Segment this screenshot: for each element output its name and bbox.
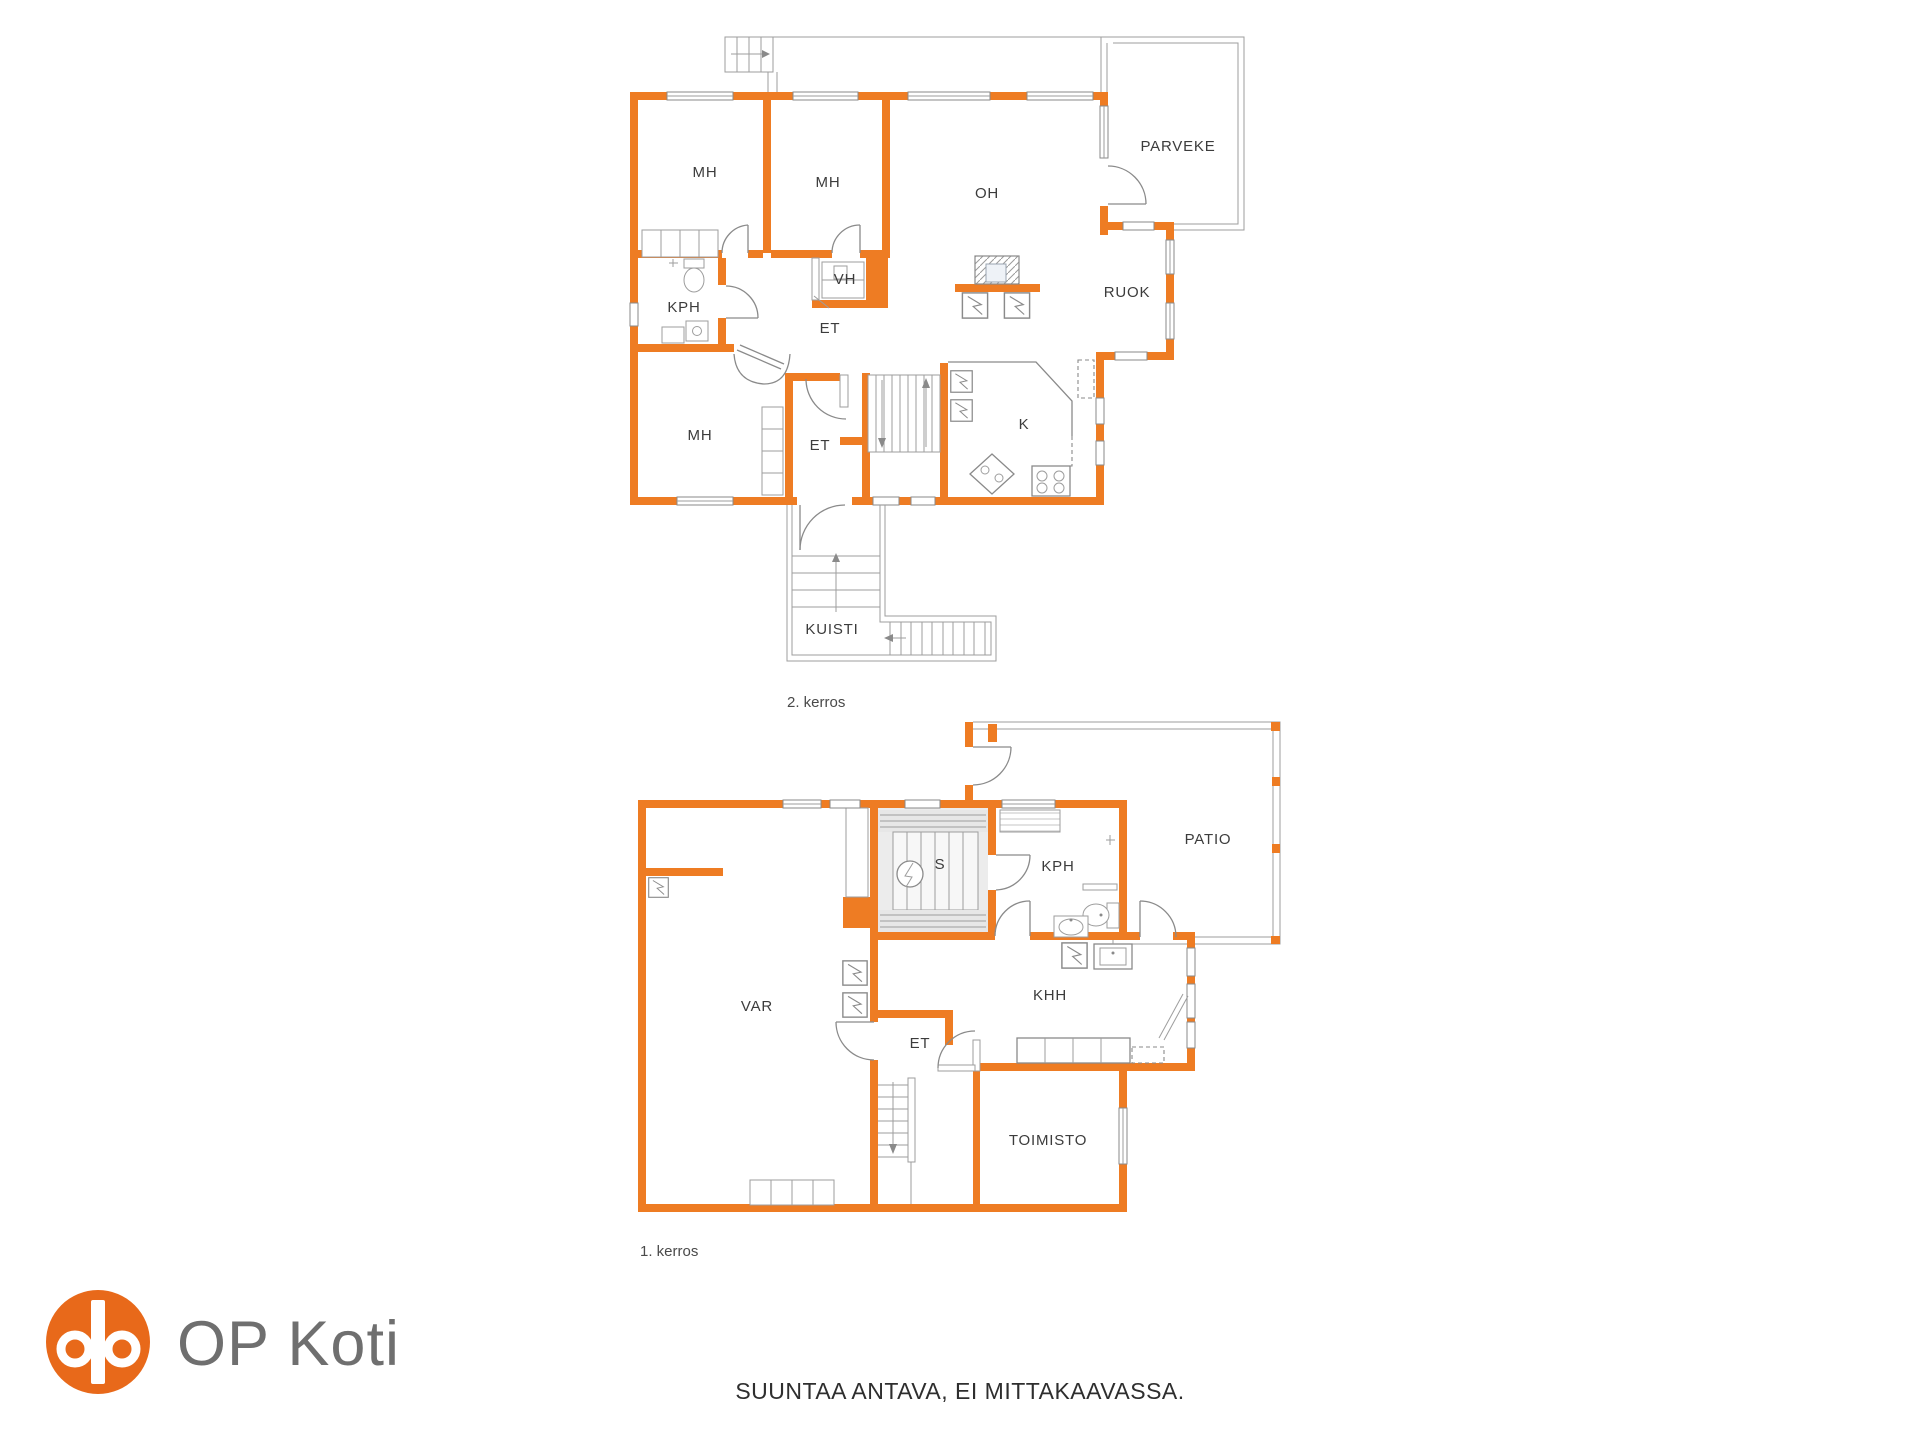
room-label-k: K	[1019, 416, 1030, 433]
floorplan-drawing: MH MH OH PARVEKE VH RUOK KPH ET MH ET K …	[0, 0, 1920, 1440]
op-koti-logo: OP Koti	[46, 1290, 400, 1394]
disclaimer-caption: SUUNTAA ANTAVA, EI MITTAKAAVASSA.	[735, 1378, 1184, 1404]
sauna-interior	[878, 808, 988, 932]
floor-1-plan: S KPH PATIO VAR KHH ET TOIMISTO 1. kerro…	[638, 722, 1280, 1260]
logo-text: OP Koti	[177, 1309, 400, 1379]
floor-2-name: 2. kerros	[787, 694, 845, 711]
floor-2-plan: MH MH OH PARVEKE VH RUOK KPH ET MH ET K …	[630, 37, 1244, 711]
room-label-vh: VH	[834, 271, 856, 288]
electrical-panel-icon	[843, 961, 867, 985]
tap-icon	[1106, 835, 1115, 845]
room-label-khh: KHH	[1033, 987, 1067, 1004]
storage-icon	[750, 1180, 834, 1205]
room-label-kph1: KPH	[1041, 858, 1074, 875]
room-label-s: S	[935, 856, 946, 873]
room-label-ruok: RUOK	[1104, 284, 1151, 301]
room-label-parveke: PARVEKE	[1140, 138, 1215, 155]
room-label-kuisti: KUISTI	[805, 621, 858, 638]
room-label-et2b: ET	[810, 437, 831, 454]
utility-sink-icon	[1094, 940, 1132, 969]
room-label-patio: PATIO	[1185, 831, 1232, 848]
towel-rail-icon	[1083, 884, 1117, 890]
appliance-icon	[1004, 293, 1029, 318]
sauna-stove-icon	[897, 861, 923, 887]
appliance-icon	[962, 293, 987, 318]
room-label-mh2: MH	[816, 174, 841, 191]
electrical-panel-icon	[649, 878, 669, 898]
floorplan-page: MH MH OH PARVEKE VH RUOK KPH ET MH ET K …	[0, 0, 1920, 1440]
floor-1-name: 1. kerros	[640, 1243, 698, 1260]
counter-icon	[1017, 1038, 1164, 1063]
room-label-oh: OH	[975, 185, 999, 202]
exterior-stair-top-icon	[725, 37, 777, 92]
room-label-et2a: ET	[820, 320, 841, 337]
room-label-mh3: MH	[688, 427, 713, 444]
sink-icon	[1054, 916, 1088, 937]
room-label-var: VAR	[741, 998, 773, 1015]
balcony-outline	[773, 37, 1244, 230]
fireplace-icon	[975, 256, 1019, 284]
room-label-kph2: KPH	[667, 299, 700, 316]
sink-icon	[662, 321, 708, 343]
stairs-floor2-icon	[868, 375, 940, 452]
low-wall	[846, 808, 868, 897]
room-label-et1: ET	[910, 1035, 931, 1052]
stairs-floor1-icon	[878, 1078, 915, 1204]
electrical-panel-icon	[843, 993, 867, 1017]
toilet-icon	[669, 259, 704, 292]
washer-icon	[1062, 943, 1087, 968]
room-label-toimisto: TOIMISTO	[1009, 1132, 1087, 1149]
shower-icon	[1000, 810, 1060, 832]
room-label-mh1: MH	[693, 164, 718, 181]
